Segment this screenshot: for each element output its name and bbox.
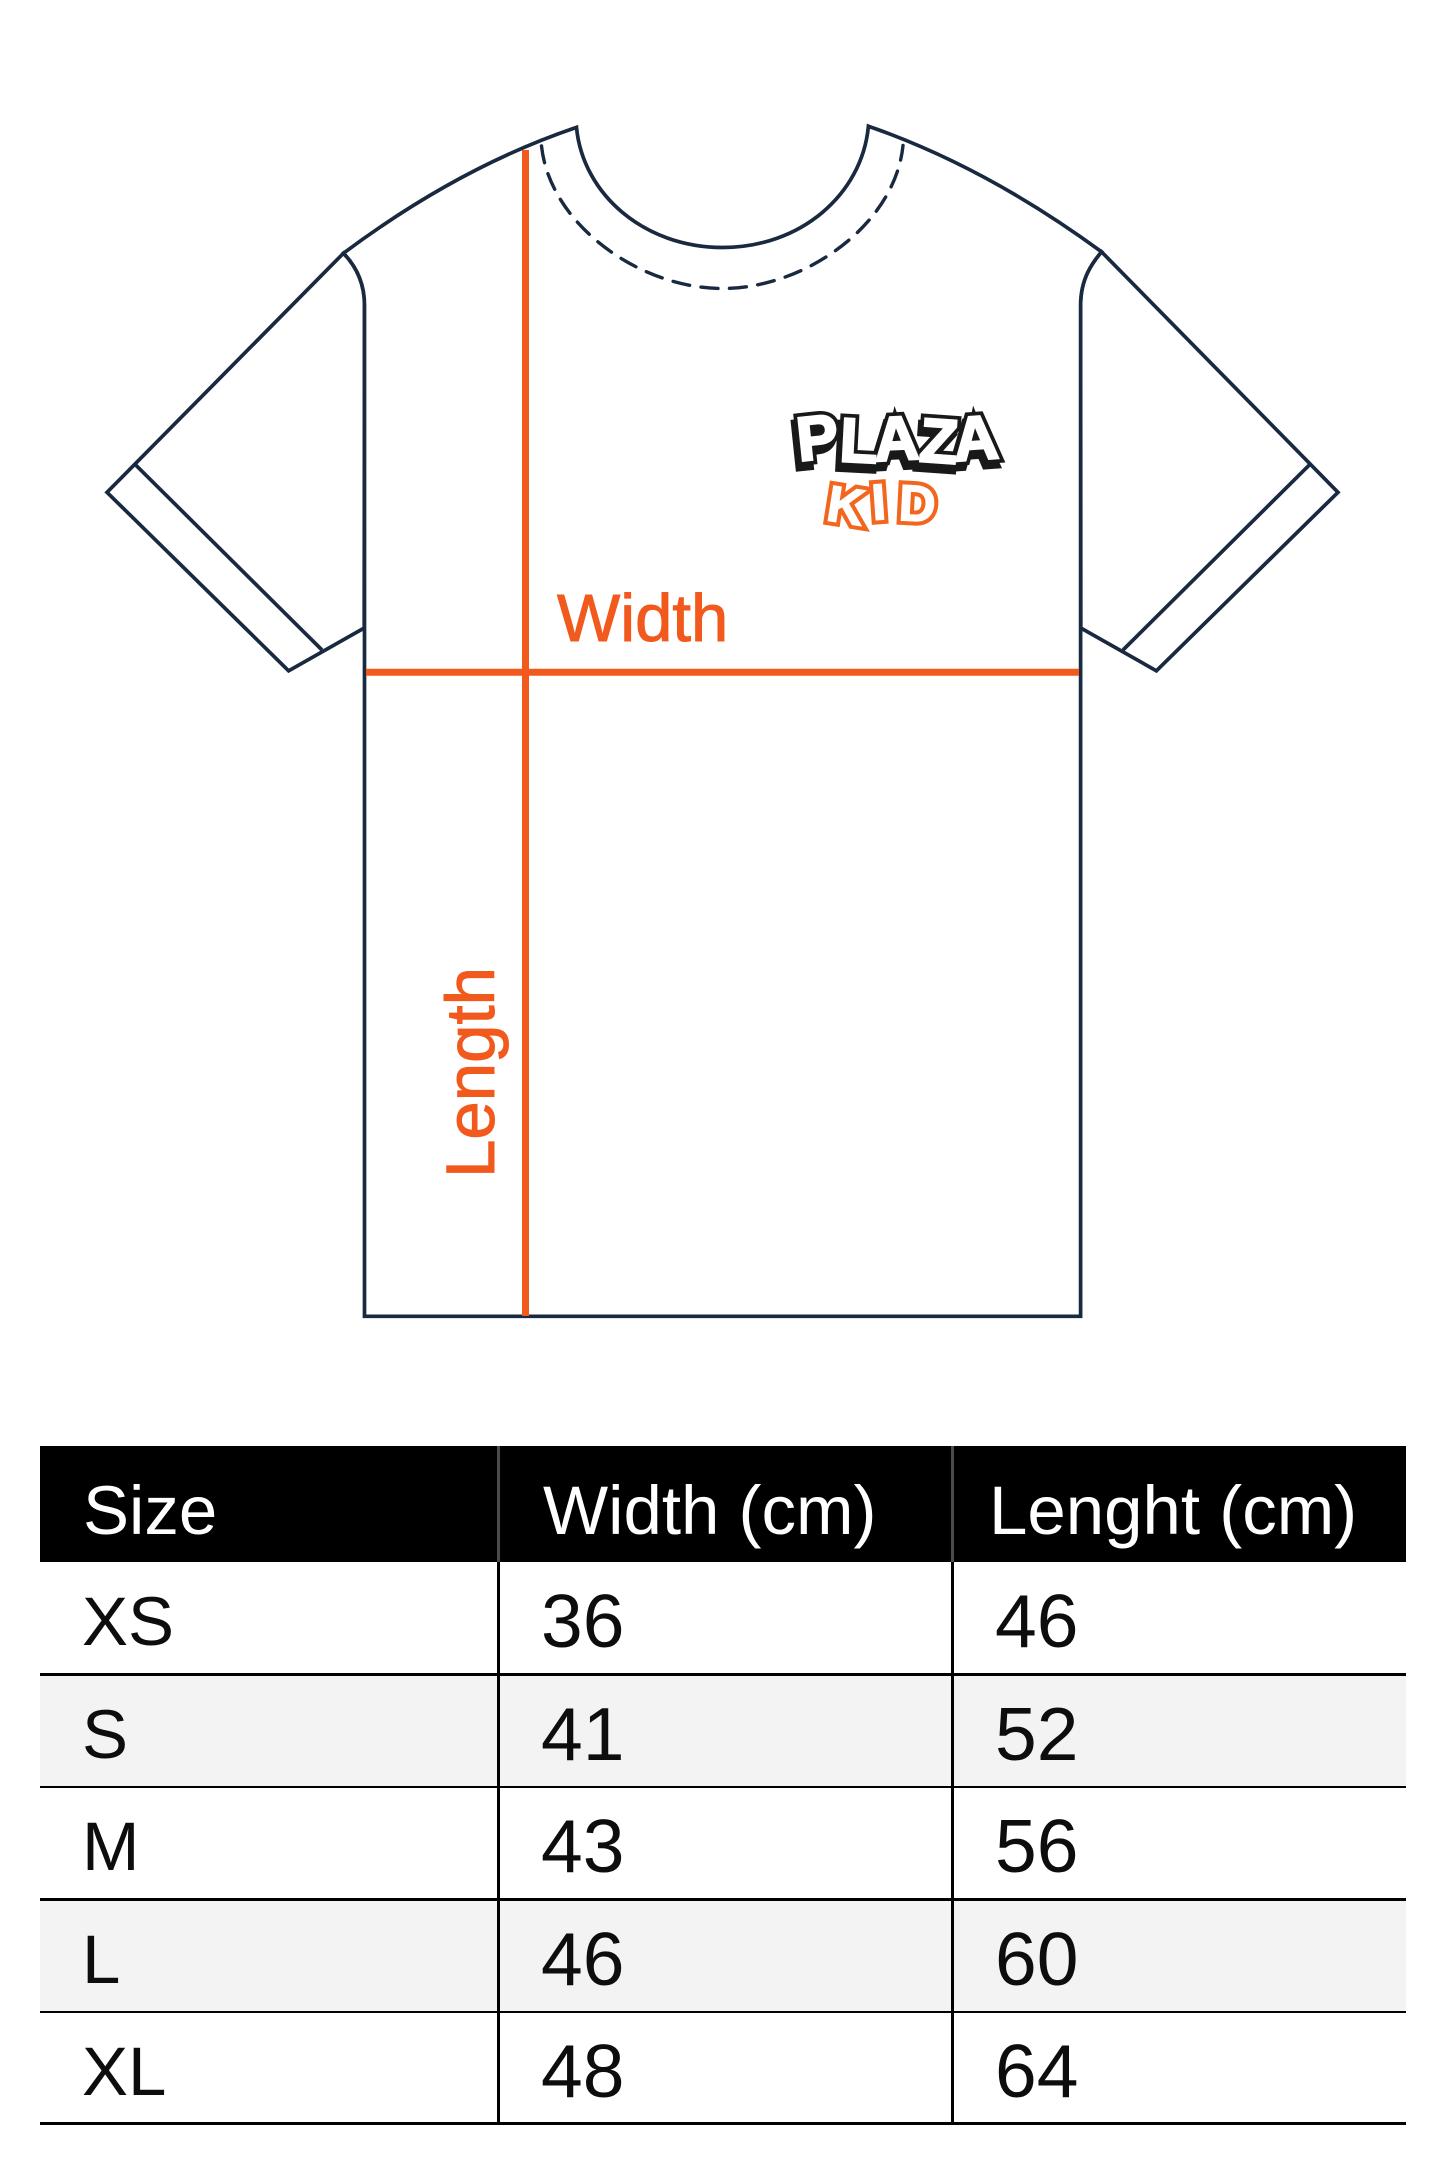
- svg-text:Length: Length: [432, 967, 509, 1178]
- svg-text:PLAZA: PLAZA: [793, 402, 1000, 477]
- svg-text:Width: Width: [557, 581, 728, 656]
- svg-text:KID: KID: [823, 472, 948, 538]
